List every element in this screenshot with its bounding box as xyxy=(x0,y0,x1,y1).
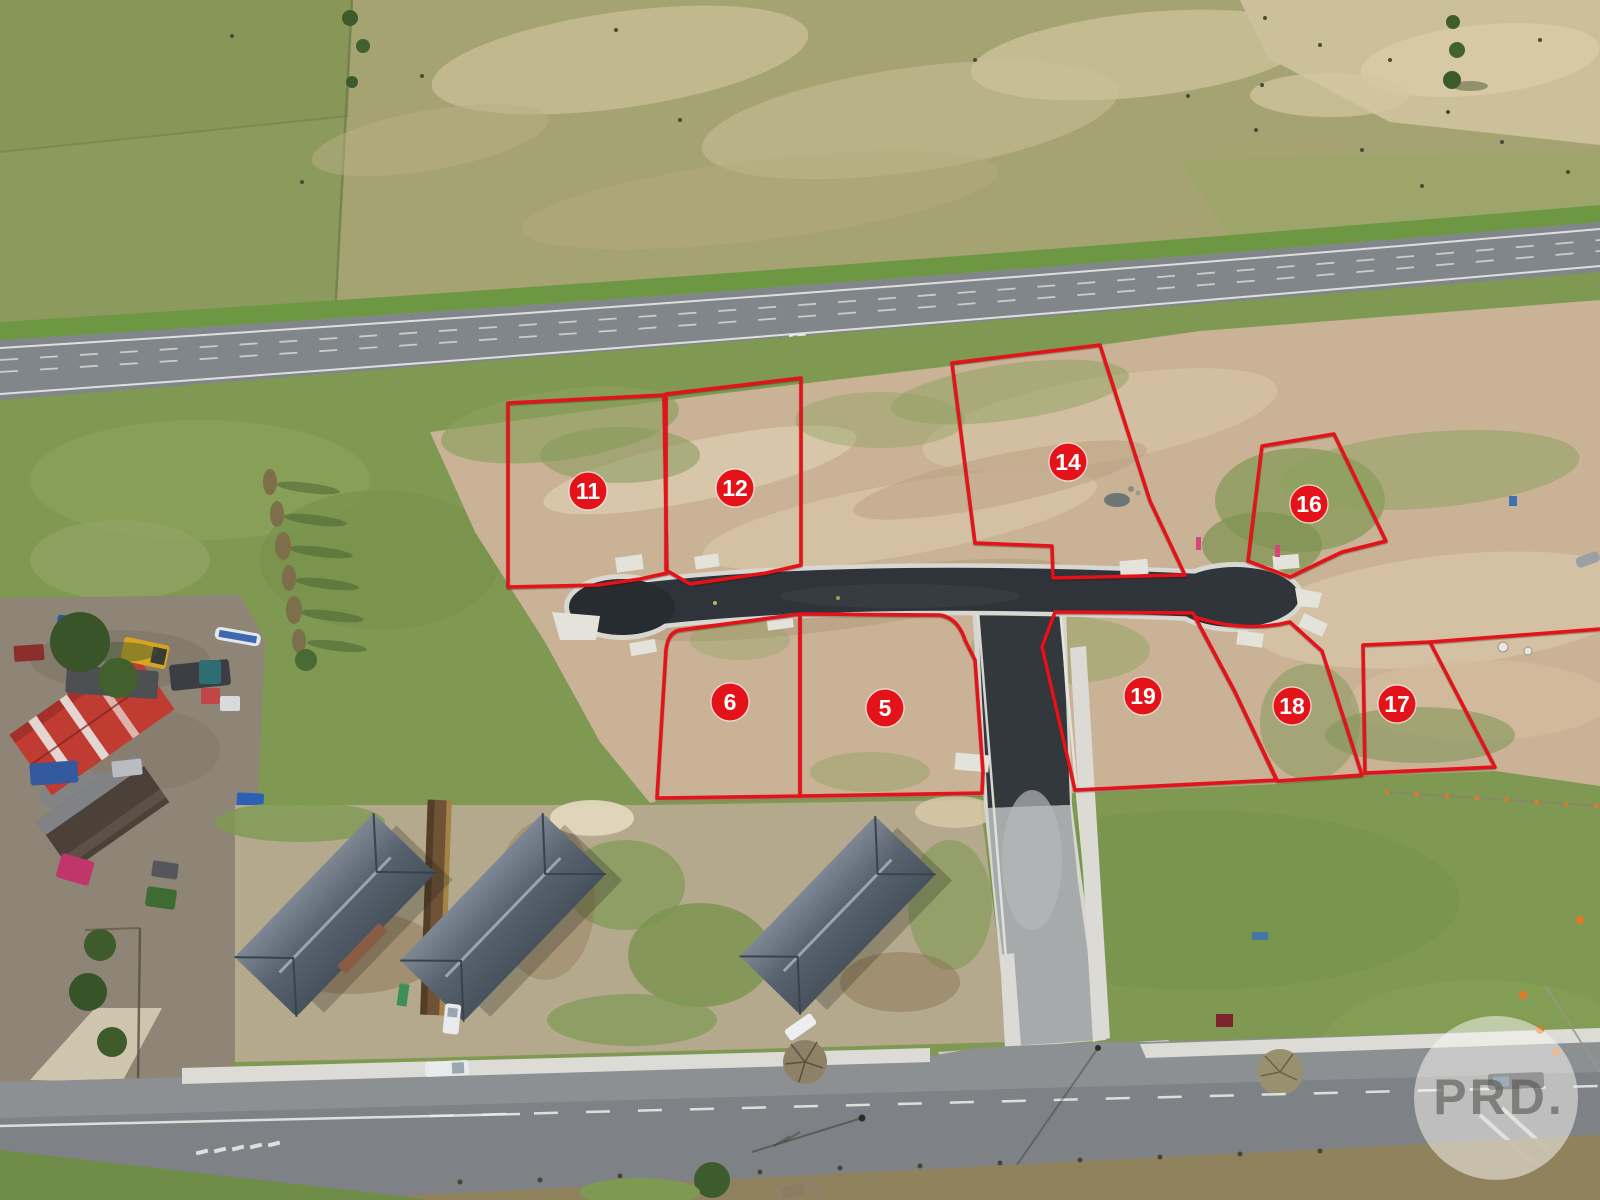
prd-watermark-text: PRD. xyxy=(1433,1069,1564,1125)
ute-house-2 xyxy=(442,1003,461,1035)
svg-text:11: 11 xyxy=(576,478,601,504)
svg-text:16: 16 xyxy=(1296,491,1322,517)
lot-17-badge: 17 xyxy=(1378,685,1416,723)
prd-watermark: PRD. xyxy=(1414,1016,1578,1180)
farmyard xyxy=(0,595,265,1085)
lot-12-badge: 12 xyxy=(716,469,754,507)
lot-5-badge: 5 xyxy=(866,689,904,727)
svg-text:14: 14 xyxy=(1055,449,1081,475)
street-tree xyxy=(1257,1049,1303,1095)
street-tree xyxy=(783,1040,827,1084)
survey-flag xyxy=(1275,545,1280,557)
parked-ute xyxy=(425,1060,470,1077)
svg-text:6: 6 xyxy=(724,689,737,715)
svg-text:18: 18 xyxy=(1279,693,1305,719)
lot-6-badge: 6 xyxy=(711,683,749,721)
aerial-photo-canvas: 1112141665191817 PRD. xyxy=(0,0,1600,1200)
svg-text:12: 12 xyxy=(722,475,748,501)
svg-text:17: 17 xyxy=(1384,691,1410,717)
lot-19-badge: 19 xyxy=(1124,677,1162,715)
blue-marker xyxy=(1509,496,1517,506)
svg-text:19: 19 xyxy=(1130,683,1156,709)
aerial-subdivision-photo: 1112141665191817 PRD. xyxy=(0,0,1600,1200)
red-trailer xyxy=(1216,1014,1233,1027)
lot-14-badge: 14 xyxy=(1049,443,1087,481)
lot-11-badge: 11 xyxy=(569,472,607,510)
lot-18-badge: 18 xyxy=(1273,687,1311,725)
survey-flag xyxy=(1196,537,1201,550)
svg-text:5: 5 xyxy=(879,695,892,721)
lot-16-badge: 16 xyxy=(1290,485,1328,523)
